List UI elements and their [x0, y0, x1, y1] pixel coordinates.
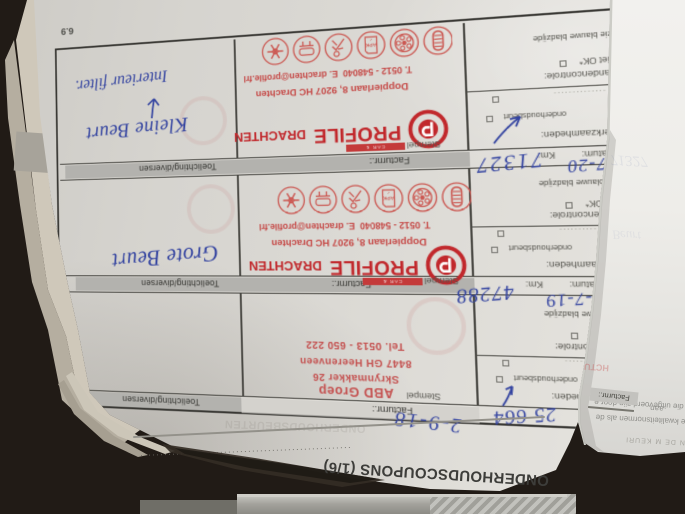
- svg-text:✓: ✓: [369, 37, 373, 42]
- svg-text:✓: ✓: [387, 190, 391, 195]
- svg-text:APK: APK: [365, 41, 376, 47]
- svg-text:APK: APK: [383, 195, 394, 201]
